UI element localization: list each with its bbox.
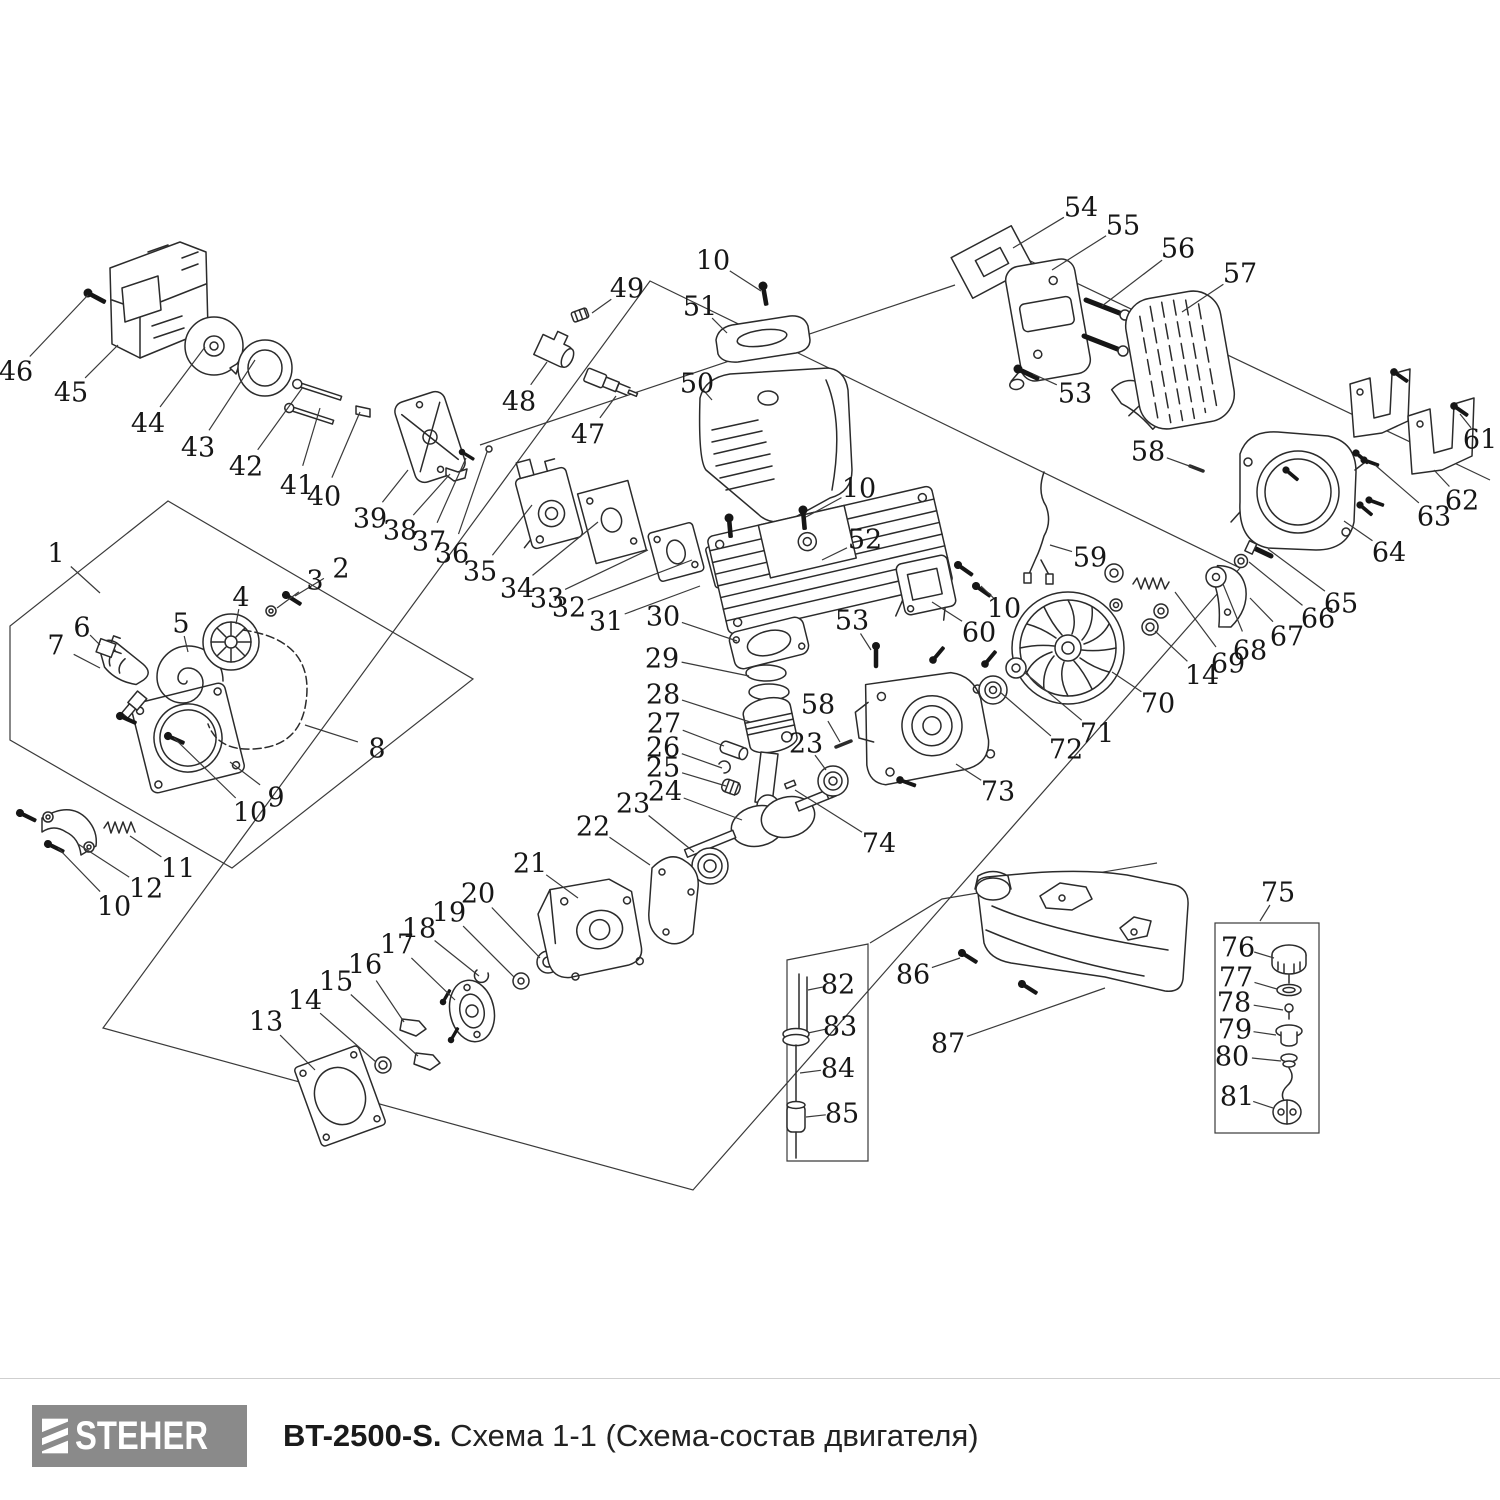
part-label: 7: [47, 631, 64, 662]
part-label: 4: [232, 583, 249, 614]
part-clutch-spring: [1133, 578, 1169, 589]
part-filter-ring: [238, 340, 292, 396]
leader-line: [492, 505, 532, 555]
leader-line: [1253, 1101, 1273, 1108]
part-label: 42: [229, 452, 263, 483]
part-nut: [1110, 599, 1122, 611]
part-label: 14: [1185, 661, 1219, 692]
part-label: 70: [1141, 689, 1175, 720]
leader-line: [682, 773, 726, 786]
part-grommet: [783, 1029, 809, 1046]
screw-icon: [447, 1026, 461, 1045]
part-cap-valve: [1285, 1004, 1293, 1019]
part-wrist-pin: [719, 740, 749, 761]
part-label: 56: [1161, 234, 1195, 265]
leader-line: [30, 295, 88, 357]
part-label: 12: [129, 874, 163, 905]
part-clamp-strap: [42, 810, 96, 855]
leader-line: [531, 362, 547, 385]
part-starter-pawl-disc: [185, 317, 243, 375]
leader-line: [280, 1035, 315, 1070]
part-label: 13: [249, 1007, 283, 1038]
part-label: 5: [172, 609, 189, 640]
part-washer: [1006, 658, 1026, 678]
brand-name: STEHER: [75, 1416, 208, 1456]
leader-line: [1255, 982, 1278, 989]
leader-line: [382, 470, 408, 502]
leader-line: [130, 836, 161, 857]
part-label: 84: [821, 1054, 855, 1085]
screw-icon: [952, 559, 975, 578]
leader-line: [376, 981, 404, 1022]
leader-line: [932, 958, 960, 968]
leader-line: [730, 271, 761, 291]
screw-icon: [758, 281, 771, 307]
part-case-gasket: [649, 857, 698, 944]
part-label: 64: [1372, 538, 1406, 569]
part-label: 46: [0, 357, 33, 388]
leader-line: [682, 754, 722, 768]
diagram-title: BT-2500-S. Схема 1-1 (Схема-состав двига…: [283, 1418, 979, 1454]
part-label: 48: [502, 387, 536, 418]
part-label: 3: [306, 566, 323, 597]
part-label: 15: [319, 967, 353, 998]
leader-line: [1155, 631, 1187, 661]
model-number: BT-2500-S.: [283, 1418, 442, 1453]
part-label: 53: [1058, 379, 1092, 410]
part-label: 49: [610, 274, 644, 305]
part-snap-ring: [474, 970, 488, 982]
leader-line: [1013, 217, 1064, 248]
part-label: 9: [267, 783, 284, 814]
part-label: 19: [432, 898, 466, 929]
part-handle-cover: [716, 316, 810, 362]
steher-logo-mark: [42, 1418, 68, 1454]
leader-line: [85, 345, 118, 378]
part-label: 71: [1080, 719, 1114, 750]
part-label: 23: [789, 729, 823, 760]
part-fuel-cap: [1272, 945, 1306, 983]
part-filter-back-plate: [392, 389, 467, 485]
part-label: 63: [1417, 502, 1451, 533]
part-washer: [1154, 604, 1168, 618]
part-label: 10: [97, 892, 131, 923]
part-label: 10: [987, 594, 1021, 625]
part-label: 30: [646, 602, 680, 633]
leader-line: [1252, 1058, 1281, 1061]
part-spark-plug: [583, 368, 639, 402]
leader-line: [1052, 236, 1106, 270]
leader-line: [1175, 592, 1216, 647]
part-label: 66: [1301, 604, 1335, 635]
leader-line: [492, 908, 540, 959]
part-cap-grommet: [1276, 1025, 1302, 1046]
leader-line: [967, 988, 1105, 1036]
part-label: 21: [513, 849, 547, 880]
part-label: 2: [332, 554, 349, 585]
part-label: 51: [683, 292, 717, 323]
part-washer: [1105, 564, 1123, 582]
part-label: 74: [862, 829, 896, 860]
part-label: 50: [680, 369, 714, 400]
part-tension-spring: [104, 822, 135, 833]
screw-icon: [280, 589, 303, 608]
part-label: 72: [1049, 735, 1083, 766]
part-case-screw: [872, 642, 880, 666]
leader-line: [1434, 470, 1449, 487]
part-label: 11: [161, 854, 195, 885]
part-nut: [375, 1057, 391, 1073]
part-washer: [1235, 555, 1248, 568]
part-bearing: [979, 676, 1007, 704]
part-label: 85: [825, 1099, 859, 1130]
leader-line: [806, 1115, 826, 1117]
part-breather-tube: [799, 974, 807, 1035]
part-rope-pulley: [203, 614, 259, 670]
part-label: 55: [1106, 211, 1140, 242]
part-label: 40: [307, 482, 341, 513]
part-piston-rings: [746, 665, 789, 700]
diagram-subtitle: Схема 1-1 (Схема-состав двигателя): [450, 1418, 978, 1453]
footer-divider: [0, 1378, 1500, 1379]
part-cap-retainer: [1273, 1068, 1301, 1124]
screw-icon: [15, 808, 38, 825]
part-label: 31: [589, 607, 623, 638]
part-label: 57: [1223, 259, 1257, 290]
part-washer: [266, 606, 276, 616]
exploded-parts-diagram: 4645444342414039383736353433323130292827…: [0, 0, 1500, 1378]
part-stop-switch-wire: [1024, 472, 1053, 584]
part-label: 28: [646, 680, 680, 711]
part-label: 29: [645, 644, 679, 675]
leader-line: [71, 567, 100, 594]
part-label: 59: [1073, 543, 1107, 574]
steher-logo: STEHER: [32, 1405, 247, 1467]
part-label: 17: [380, 930, 414, 961]
part-label: 52: [848, 525, 882, 556]
leader-line: [1112, 672, 1141, 692]
part-label: 8: [368, 734, 385, 765]
part-label: 6: [73, 613, 90, 644]
leader-line: [684, 798, 742, 820]
part-label: 45: [54, 378, 88, 409]
leader-line: [1254, 1032, 1277, 1035]
leader-line: [610, 837, 651, 865]
part-crankshaft: [685, 752, 837, 857]
leader-line: [1250, 598, 1273, 622]
part-starter-housing: [130, 682, 245, 794]
part-intake-block: [647, 522, 704, 582]
part-label: 47: [571, 420, 605, 451]
part-label: 67: [1270, 622, 1304, 653]
part-label: 61: [1463, 425, 1497, 456]
part-label: 10: [233, 798, 267, 829]
part-woodruff-key: [785, 780, 796, 788]
part-label: 81: [1220, 1082, 1254, 1113]
part-label: 1: [47, 539, 64, 570]
leader-line: [332, 412, 360, 478]
part-label: 24: [648, 777, 682, 808]
part-label: 43: [181, 433, 215, 464]
part-label: 82: [821, 970, 855, 1001]
leader-line: [592, 299, 611, 313]
part-label: 44: [131, 409, 165, 440]
part-label: 53: [835, 606, 869, 637]
leader-line: [435, 941, 479, 977]
part-pin: [486, 446, 492, 452]
part-fuel-filter: [787, 1102, 805, 1159]
part-crankcase-right: [852, 668, 997, 787]
part-label: 87: [931, 1029, 965, 1060]
part-label: 10: [696, 246, 730, 277]
leader-line: [1167, 458, 1192, 467]
part-label: 23: [616, 789, 650, 820]
leader-line: [411, 958, 455, 1000]
part-label: 54: [1064, 193, 1098, 224]
part-label: 58: [1131, 437, 1165, 468]
leader-line: [160, 347, 205, 407]
screw-icon: [1364, 495, 1385, 508]
part-plug-boot: [534, 326, 581, 370]
leader-line: [683, 730, 724, 746]
part-cap-bushing: [1281, 1054, 1297, 1067]
part-nut: [1142, 619, 1158, 635]
part-label: 22: [576, 812, 610, 843]
screw-icon: [928, 645, 947, 666]
part-label: 83: [823, 1012, 857, 1043]
part-label: 86: [896, 960, 930, 991]
leader-line: [1050, 545, 1072, 552]
part-label: 76: [1221, 933, 1255, 964]
part-cap-washer: [1277, 985, 1301, 996]
part-label: 32: [552, 593, 586, 624]
part-label: 80: [1215, 1042, 1249, 1073]
part-muffler-screws: [1084, 300, 1130, 356]
part-clip: [571, 308, 589, 323]
parts-layer: [15, 226, 1474, 1158]
leader-line: [828, 721, 840, 742]
part-bearing: [818, 766, 848, 796]
part-label: 75: [1261, 878, 1295, 909]
part-carb-plate: [578, 480, 647, 563]
part-muffler-cover: [1109, 287, 1238, 436]
part-needle-bearing: [720, 778, 741, 796]
part-engine-cover: [700, 368, 852, 522]
leader-line: [588, 560, 692, 600]
part-label: 73: [981, 777, 1015, 808]
part-dowel-pin: [836, 741, 851, 747]
leader-line: [78, 844, 129, 877]
leader-line: [682, 700, 750, 722]
part-fuel-tank: [975, 871, 1188, 991]
footer: STEHER BT-2500-S. Схема 1-1 (Схема-соста…: [32, 1402, 1470, 1470]
leader-line: [1254, 1005, 1283, 1010]
leader-line: [74, 654, 100, 668]
part-crankcase-left: [534, 876, 645, 985]
part-label: 58: [801, 690, 835, 721]
schematic-page: 4645444342414039383736353433323130292827…: [0, 0, 1500, 1500]
part-label: 35: [463, 557, 497, 588]
part-washer: [513, 973, 529, 989]
leader-line: [305, 725, 358, 742]
part-flywheel: [1012, 592, 1124, 704]
leader-line: [649, 816, 694, 853]
part-mount-plate: [294, 1045, 387, 1147]
leader-line: [800, 1070, 821, 1073]
screw-icon: [956, 947, 979, 966]
screw-icon: [980, 649, 999, 670]
screw-icon: [1016, 978, 1039, 997]
part-label: 10: [842, 474, 876, 505]
leader-line: [1254, 952, 1274, 958]
leader-line: [600, 396, 616, 418]
part-label: 14: [288, 986, 322, 1017]
leader-line: [90, 635, 100, 645]
part-fan-cover: [1231, 432, 1364, 550]
